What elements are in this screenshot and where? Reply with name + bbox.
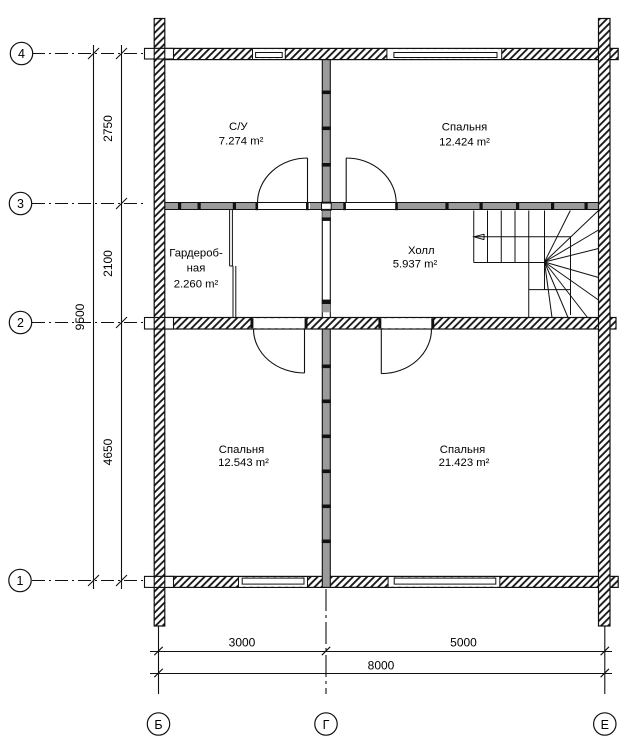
svg-text:4650: 4650 xyxy=(101,438,115,465)
svg-text:2: 2 xyxy=(17,316,24,330)
svg-text:2750: 2750 xyxy=(101,115,115,142)
svg-text:Спальня: Спальня xyxy=(442,121,487,133)
svg-text:12.424 m²: 12.424 m² xyxy=(439,136,490,148)
svg-text:9500: 9500 xyxy=(73,303,87,330)
svg-text:12.543 m²: 12.543 m² xyxy=(218,457,269,469)
svg-text:5000: 5000 xyxy=(450,636,477,650)
svg-text:3: 3 xyxy=(17,197,24,211)
svg-text:5.937 m²: 5.937 m² xyxy=(393,259,438,271)
svg-text:Спальня: Спальня xyxy=(440,444,485,456)
svg-text:1: 1 xyxy=(17,574,24,588)
svg-text:2100: 2100 xyxy=(101,250,115,277)
svg-text:С/У: С/У xyxy=(229,121,248,133)
svg-text:8000: 8000 xyxy=(368,659,395,673)
svg-text:ная: ная xyxy=(187,263,206,275)
svg-text:21.423 m²: 21.423 m² xyxy=(439,457,490,469)
svg-text:Е: Е xyxy=(601,718,609,732)
svg-text:Спальня: Спальня xyxy=(219,444,264,456)
svg-text:2.260 m²: 2.260 m² xyxy=(174,279,219,291)
svg-text:Гардероб-: Гардероб- xyxy=(169,248,223,260)
svg-text:7.274 m²: 7.274 m² xyxy=(219,136,264,148)
svg-text:Б: Б xyxy=(154,718,162,732)
svg-text:Холл: Холл xyxy=(408,245,435,257)
svg-text:Г: Г xyxy=(323,718,330,732)
svg-text:4: 4 xyxy=(18,47,25,61)
svg-text:3000: 3000 xyxy=(229,636,256,650)
